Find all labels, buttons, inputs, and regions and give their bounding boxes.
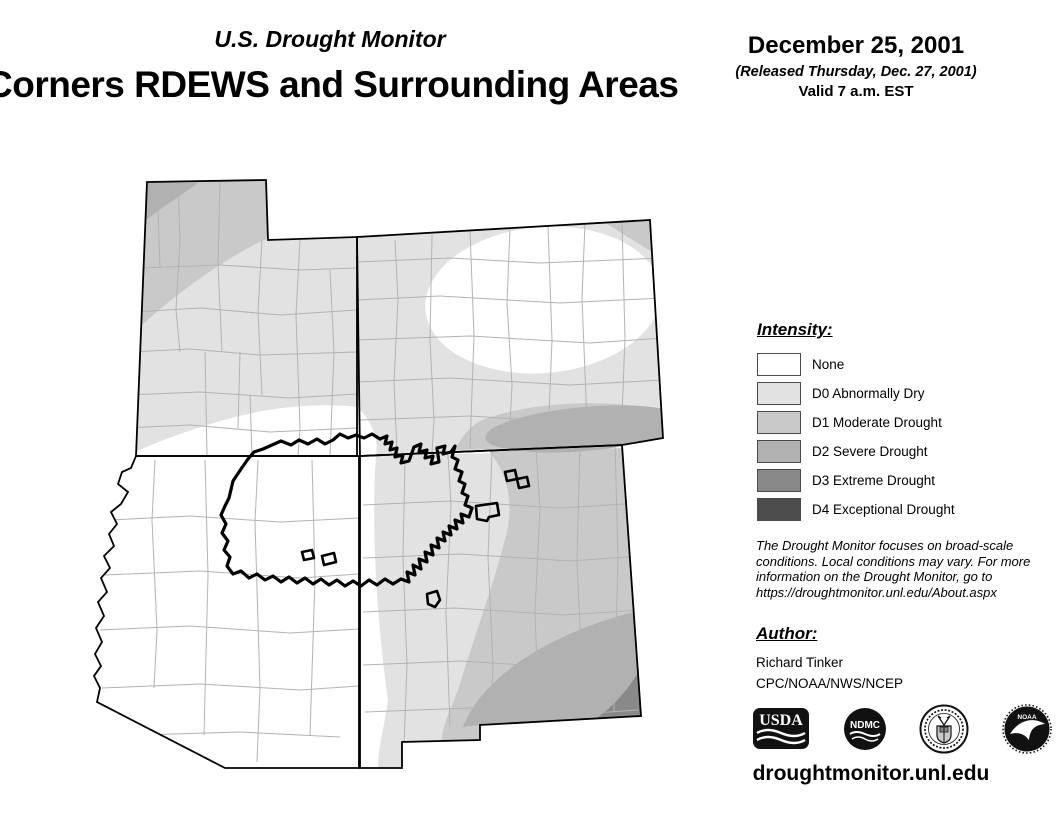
legend-title: Intensity: (757, 320, 955, 340)
author-heading: Author: (756, 624, 817, 644)
legend-item-d3: D3 Extreme Drought (757, 466, 955, 495)
usda-logo: USDA (752, 706, 810, 752)
drought-monitor-page: U.S. Drought Monitor Corners RDEWS and S… (0, 0, 1056, 816)
noaa-logo: NOAA (1002, 704, 1052, 754)
utah-shading (130, 175, 365, 465)
map-date: December 25, 2001 (706, 32, 1006, 60)
swatch-d3 (757, 469, 801, 492)
swatch-d0 (757, 382, 801, 405)
svg-text:NDMC: NDMC (850, 720, 880, 731)
svg-text:NOAA: NOAA (1017, 714, 1036, 721)
disclaimer-text: The Drought Monitor focuses on broad-sca… (756, 538, 1030, 600)
svg-text:USDA: USDA (759, 712, 803, 729)
page-title: Corners RDEWS and Surrounding Areas (0, 64, 678, 106)
legend-item-d0: D0 Abnormally Dry (757, 379, 955, 408)
author-org: CPC/NOAA/NWS/NCEP (756, 676, 903, 691)
date-block: December 25, 2001 (Released Thursday, De… (706, 32, 1006, 100)
commerce-seal (919, 704, 969, 754)
legend-item-d4: D4 Exceptional Drought (757, 495, 955, 524)
legend-item-d1: D1 Moderate Drought (757, 408, 955, 437)
swatch-none (757, 353, 801, 376)
swatch-d2 (757, 440, 801, 463)
author-name: Richard Tinker (756, 655, 843, 670)
swatch-d4 (757, 498, 801, 521)
release-date: (Released Thursday, Dec. 27, 2001) (706, 64, 1006, 80)
legend-item-none: None (757, 350, 955, 379)
swatch-d1 (757, 411, 801, 434)
logo-row: USDA NDMC NOAA (752, 704, 1052, 754)
legend-item-d2: D2 Severe Drought (757, 437, 955, 466)
ndmc-logo: NDMC (843, 707, 887, 751)
valid-time: Valid 7 a.m. EST (706, 83, 1006, 100)
monitor-title: U.S. Drought Monitor (0, 26, 660, 53)
site-url: droughtmonitor.unl.edu (706, 762, 1036, 786)
intensity-legend: Intensity: None D0 Abnormally Dry D1 Mod… (757, 320, 955, 524)
